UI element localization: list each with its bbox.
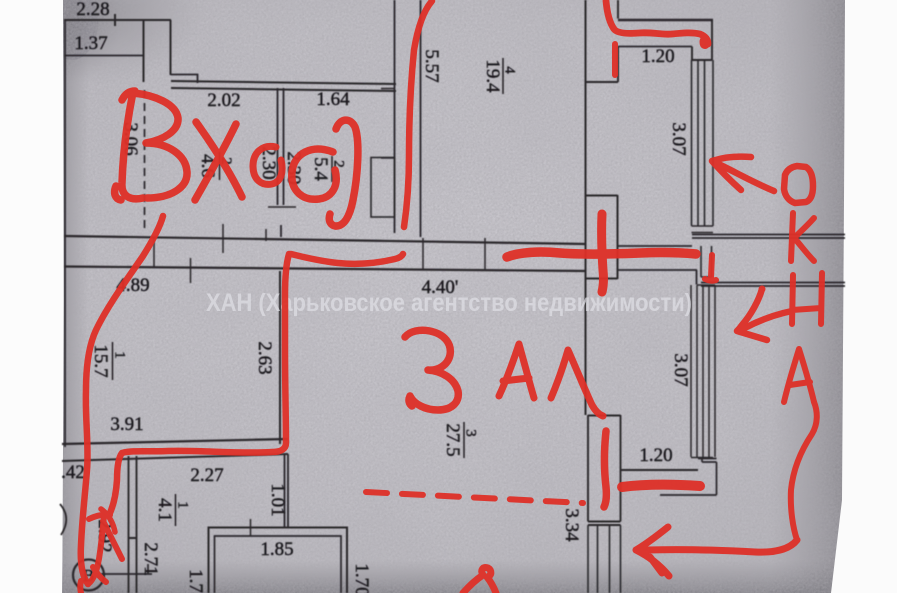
svg-text:1.64: 1.64 [316,89,350,110]
svg-text:2.02: 2.02 [207,90,240,111]
svg-text:4: 4 [502,66,518,74]
svg-text:3.07: 3.07 [668,122,689,155]
svg-text:1: 1 [112,351,128,359]
svg-text:2.71: 2.71 [140,542,161,575]
svg-text:.42: .42 [61,462,85,483]
svg-text:5.4: 5.4 [310,157,331,181]
svg-text:1.70: 1.70 [351,563,372,593]
svg-text:19.4: 19.4 [482,59,503,93]
svg-text:ХАН (Харьковское агентство нед: ХАН (Харьковское агентство недвижимости) [206,289,692,317]
svg-text:3.07: 3.07 [670,353,691,386]
svg-text:1.20: 1.20 [639,445,672,466]
svg-text:3.91: 3.91 [110,414,143,435]
svg-text:1.37: 1.37 [74,33,107,54]
svg-text:5.57: 5.57 [421,49,442,82]
svg-text:1.01: 1.01 [267,483,288,516]
svg-text:2.28: 2.28 [76,0,109,20]
svg-text:2.27: 2.27 [190,465,223,486]
svg-text:1.20: 1.20 [641,46,674,67]
svg-text:15.7: 15.7 [90,344,111,377]
svg-text:1: 1 [175,501,191,509]
svg-text:1.7: 1.7 [185,569,206,593]
svg-text:2: 2 [331,160,347,168]
svg-text:2.63: 2.63 [254,341,275,374]
svg-text:4.1: 4.1 [154,498,175,522]
svg-text:3.34: 3.34 [561,508,582,542]
svg-text:1.85: 1.85 [260,539,293,560]
svg-text:27.5: 27.5 [442,423,463,456]
svg-text:3: 3 [463,429,479,437]
